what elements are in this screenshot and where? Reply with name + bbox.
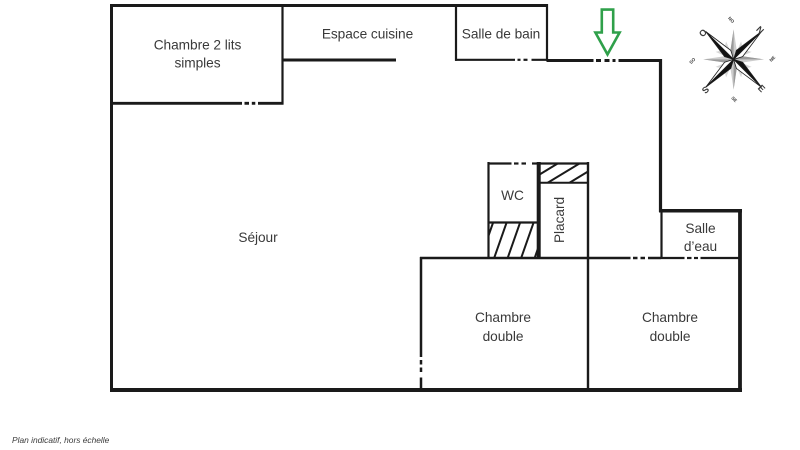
- svg-text:Salle: Salle: [685, 221, 715, 236]
- svg-text:d’eau: d’eau: [684, 239, 717, 254]
- svg-text:O: O: [697, 27, 709, 39]
- svg-text:Séjour: Séjour: [238, 230, 278, 245]
- svg-text:double: double: [650, 329, 691, 344]
- svg-text:Placard: Placard: [552, 197, 567, 243]
- svg-text:Plan indicatif, hors échelle: Plan indicatif, hors échelle: [12, 435, 110, 445]
- svg-text:Espace cuisine: Espace cuisine: [322, 27, 413, 42]
- svg-text:SO: SO: [688, 56, 696, 64]
- svg-text:Chambre: Chambre: [642, 310, 698, 325]
- svg-text:S: S: [700, 84, 711, 95]
- svg-text:NE: NE: [768, 55, 776, 63]
- svg-text:SE: SE: [730, 95, 738, 103]
- svg-text:double: double: [483, 329, 524, 344]
- svg-text:Chambre 2 lits: Chambre 2 lits: [154, 38, 242, 53]
- svg-text:Salle de bain: Salle de bain: [462, 27, 541, 42]
- svg-text:N: N: [754, 24, 766, 36]
- svg-text:simples: simples: [174, 56, 220, 71]
- svg-text:Chambre: Chambre: [475, 310, 531, 325]
- svg-text:WC: WC: [501, 188, 524, 203]
- svg-text:NO: NO: [727, 16, 736, 25]
